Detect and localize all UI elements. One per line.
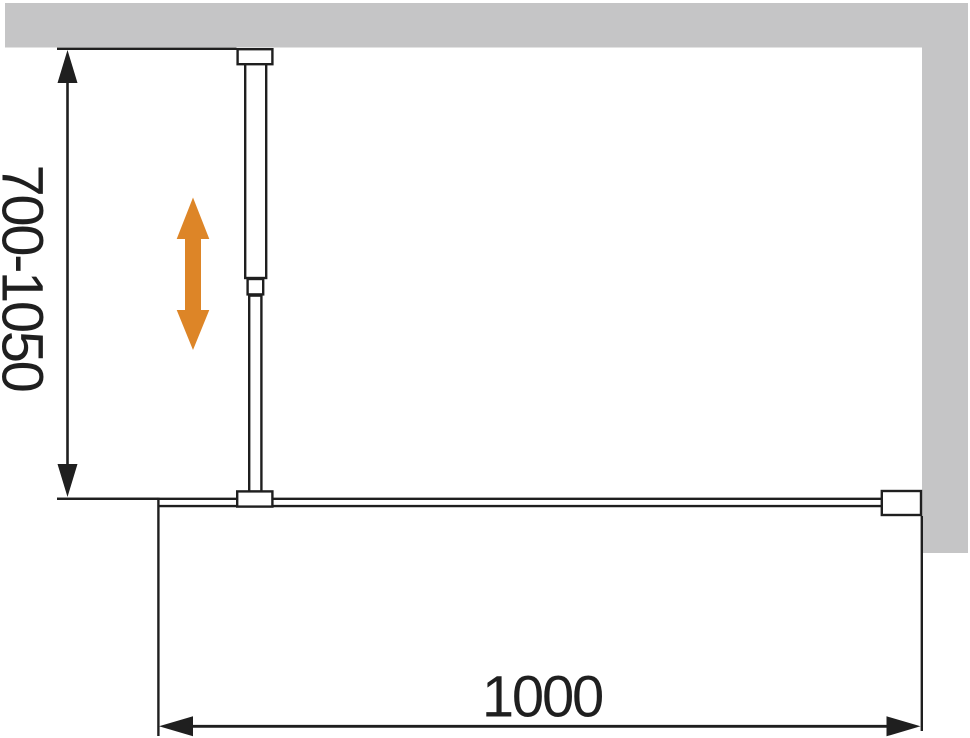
svg-text:700-1050: 700-1050: [0, 165, 55, 391]
svg-text:1000: 1000: [482, 665, 602, 730]
